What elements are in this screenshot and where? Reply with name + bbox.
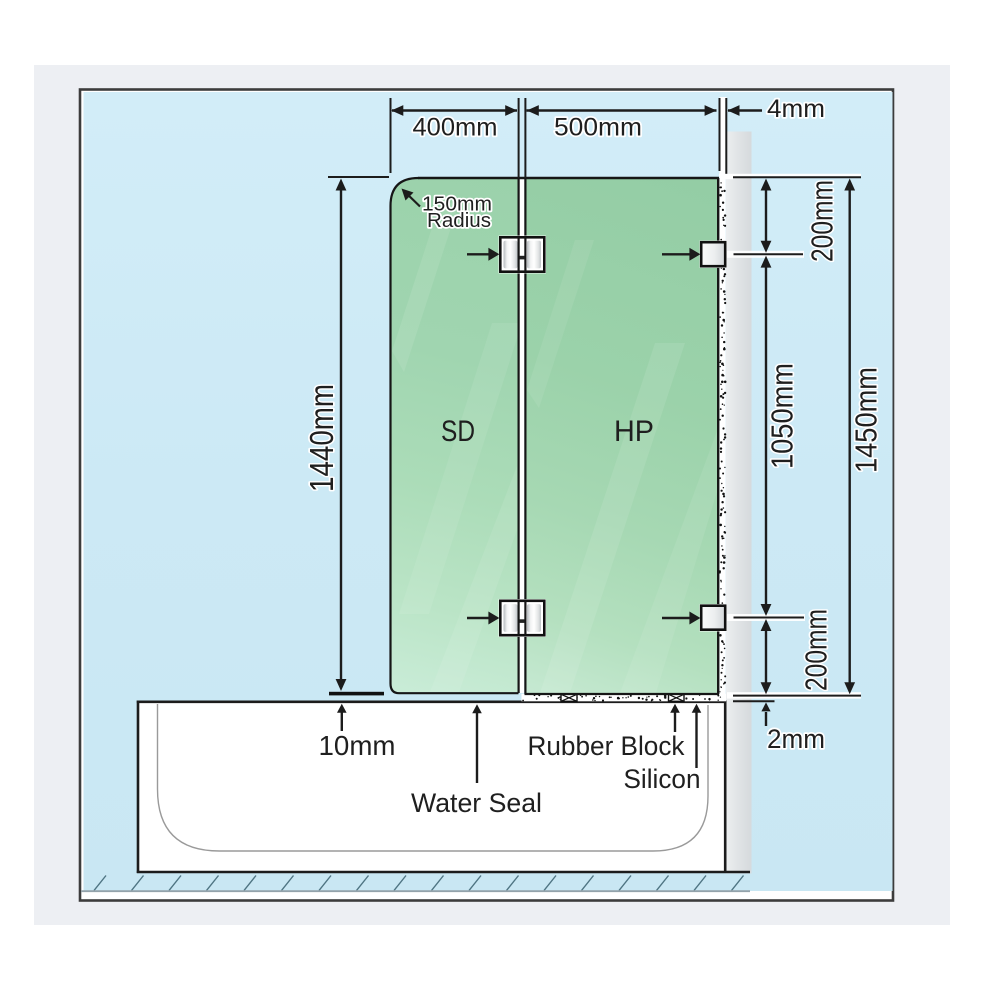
svg-text:4mm: 4mm	[767, 95, 825, 123]
svg-text:500mm: 500mm	[554, 114, 642, 142]
svg-text:Rubber Block: Rubber Block	[528, 731, 685, 761]
svg-text:10mm: 10mm	[319, 730, 396, 761]
svg-text:1450mm: 1450mm	[849, 367, 884, 473]
svg-text:Radius: Radius	[427, 210, 491, 232]
svg-text:2mm: 2mm	[767, 724, 825, 754]
svg-text:HP: HP	[614, 415, 654, 448]
svg-text:200mm: 200mm	[805, 180, 840, 262]
svg-text:Water Seal: Water Seal	[411, 788, 542, 818]
svg-text:Silicon: Silicon	[624, 764, 701, 794]
svg-text:200mm: 200mm	[799, 609, 834, 691]
svg-text:SD: SD	[441, 415, 475, 448]
svg-text:1440mm: 1440mm	[303, 384, 340, 492]
svg-text:400mm: 400mm	[413, 114, 498, 142]
svg-text:1050mm: 1050mm	[765, 363, 800, 469]
